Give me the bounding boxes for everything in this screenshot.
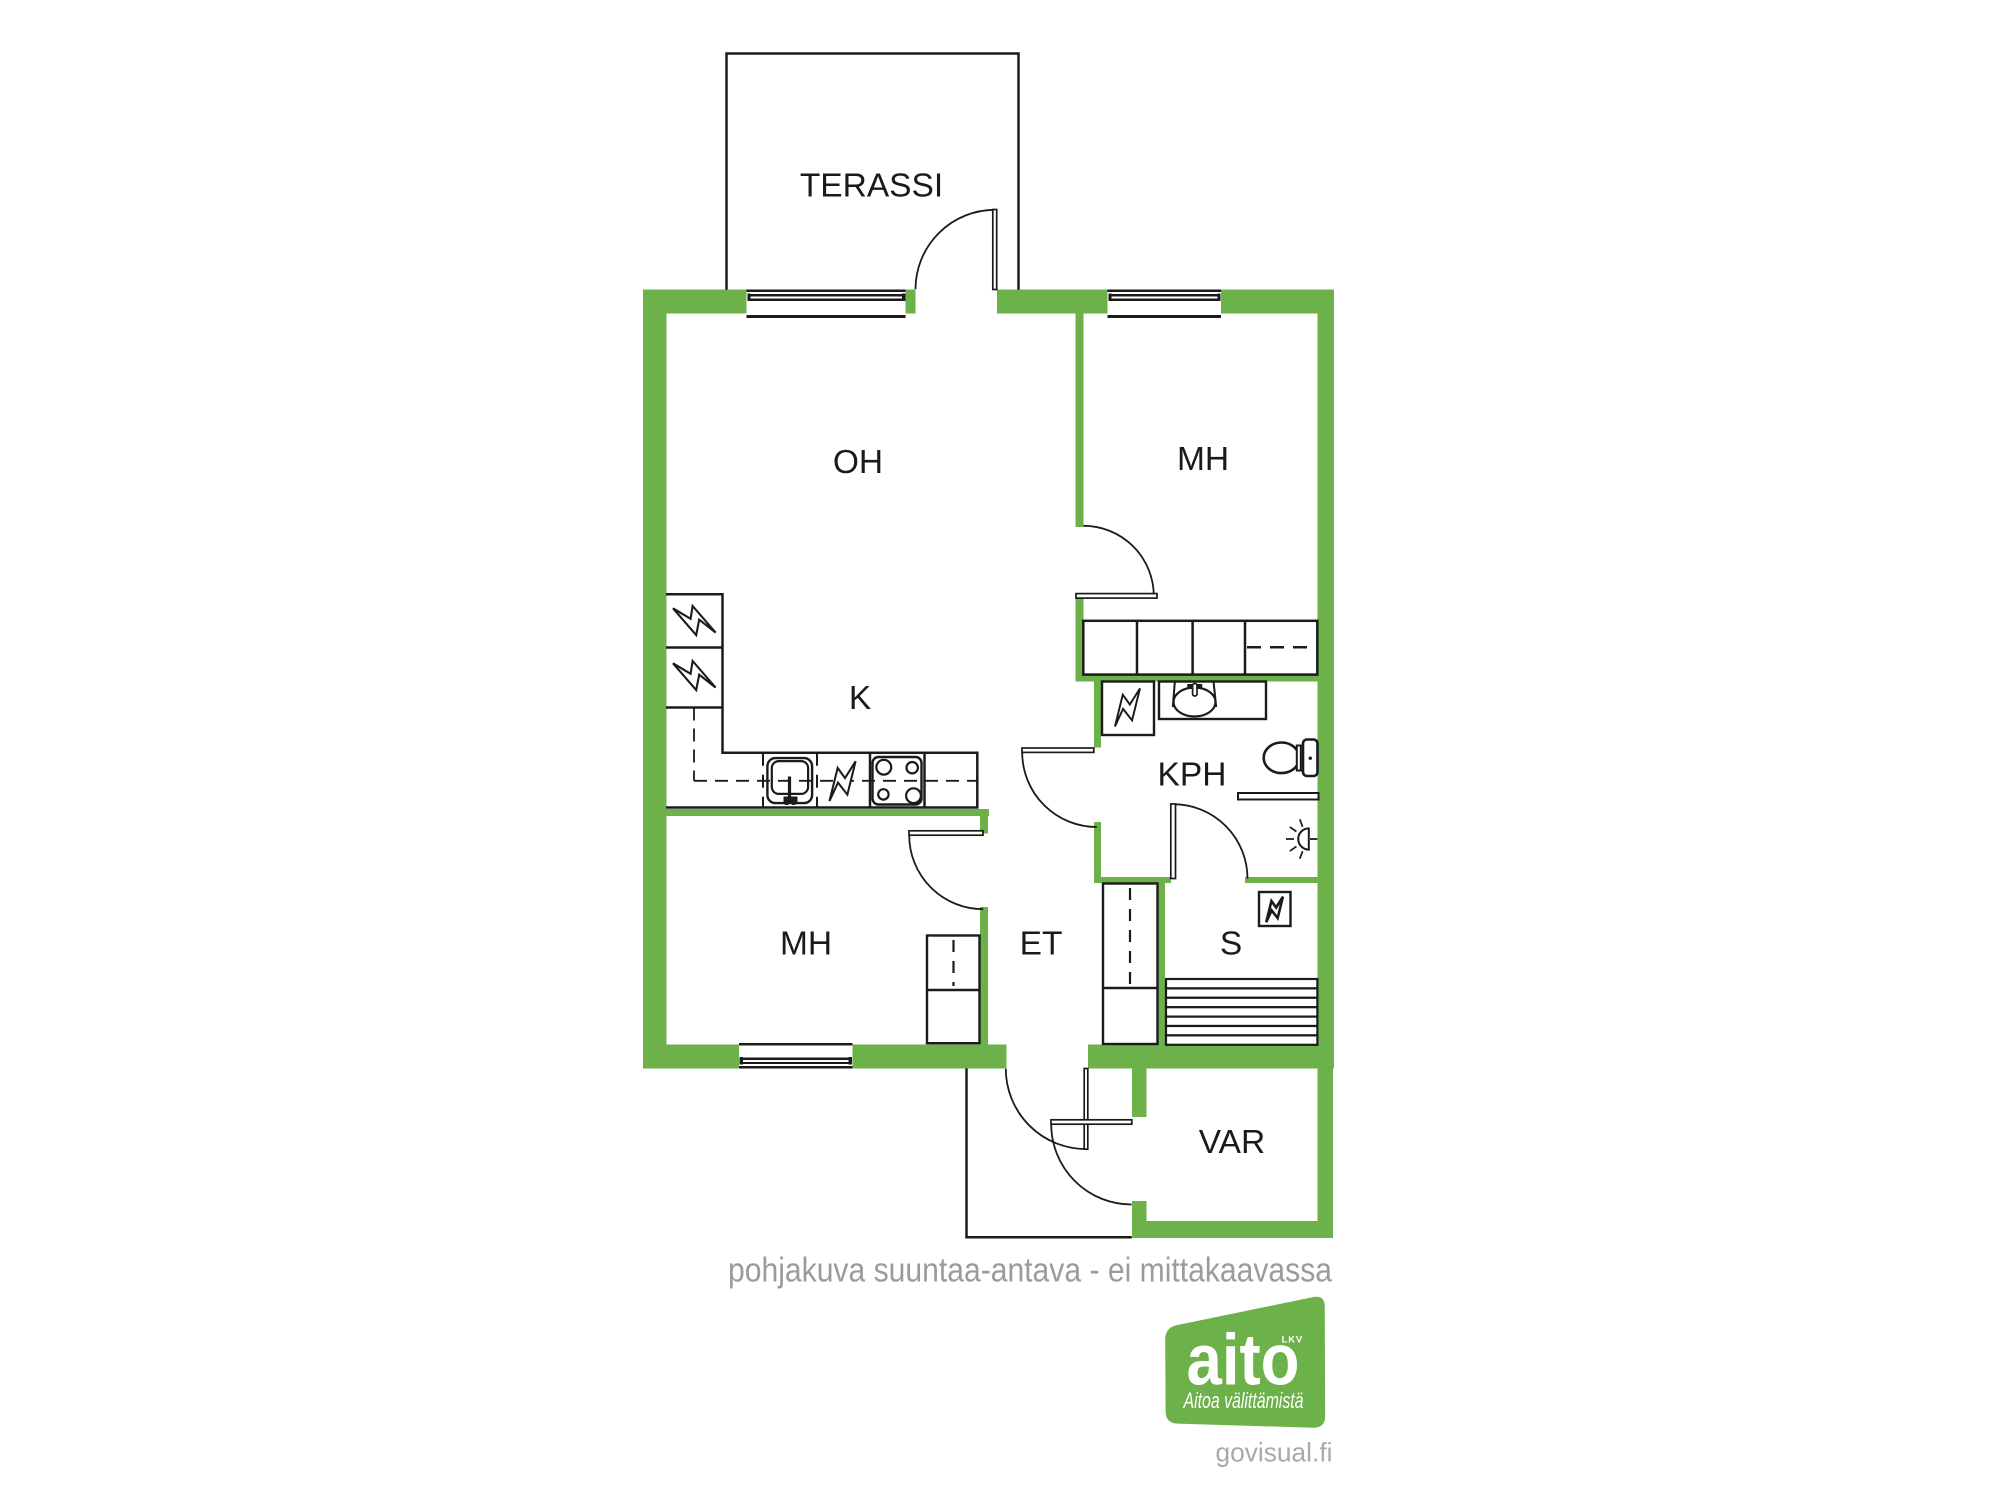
svg-text:pohjakuva suuntaa-antava - ei: pohjakuva suuntaa-antava - ei mittakaava… [728,1252,1332,1290]
svg-text:KPH: KPH [1158,757,1227,794]
svg-text:K: K [849,680,871,717]
svg-text:LKV: LKV [1282,1334,1303,1345]
svg-text:OH: OH [833,444,883,481]
svg-text:govisual.fi: govisual.fi [1216,1438,1333,1468]
svg-text:Aitoa välittämistä: Aitoa välittämistä [1182,1388,1303,1413]
svg-text:TERASSI: TERASSI [800,168,943,205]
svg-text:ET: ET [1020,926,1063,963]
svg-text:MH: MH [1177,441,1229,478]
svg-text:S: S [1220,926,1242,963]
svg-text:VAR: VAR [1199,1124,1265,1161]
svg-text:MH: MH [780,926,832,963]
